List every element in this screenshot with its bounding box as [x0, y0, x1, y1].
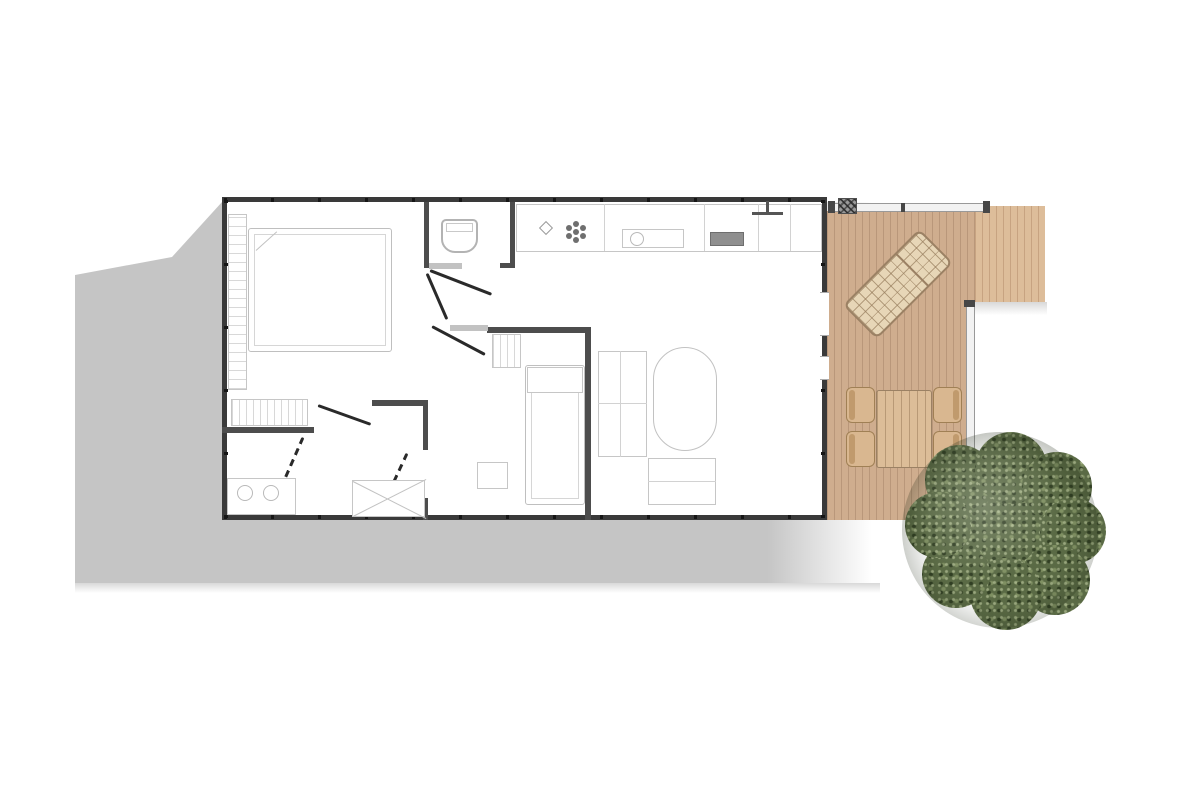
counter-divider	[704, 204, 705, 251]
bench-divider	[620, 351, 621, 457]
wall-bedroom-south-left	[222, 427, 314, 433]
outdoor-chair	[933, 387, 962, 423]
wall-bathroom-east-upper	[423, 400, 428, 450]
shelf-unit	[492, 334, 521, 368]
wardrobe-shelves	[228, 214, 247, 390]
railing-post	[828, 201, 835, 213]
entry-marker-bar	[752, 212, 783, 215]
toilet	[441, 219, 478, 253]
wall-joint-ticks-top	[224, 198, 825, 202]
railing-post	[901, 203, 905, 212]
wall-joint-ticks-bottom	[224, 515, 825, 519]
wall-bedroom2-north	[487, 327, 591, 333]
bench-divider	[598, 403, 647, 404]
deck-corner-grill	[838, 198, 857, 214]
desk	[477, 462, 508, 489]
wall-wc-east	[510, 202, 515, 268]
wall-wc-east-foot	[500, 263, 512, 268]
sliding-wardrobe	[231, 399, 308, 426]
railing-post	[983, 201, 990, 213]
railing-post	[964, 300, 975, 307]
dinette-bench-left	[598, 351, 647, 457]
patio-window-opening	[820, 356, 829, 380]
deck-extension	[975, 206, 1045, 302]
outdoor-table	[876, 390, 932, 468]
dinette-table	[653, 347, 717, 451]
patio-door-opening	[820, 292, 829, 336]
vanity-basin	[237, 485, 253, 501]
counter-divider	[790, 204, 791, 251]
wall-bedroom-south-right	[372, 400, 426, 406]
cooktop	[710, 232, 744, 246]
floor-plan-scene	[0, 0, 1200, 800]
bench-divider	[648, 481, 716, 482]
outdoor-chair	[846, 431, 875, 467]
wall-bedroom2-east	[585, 327, 591, 520]
wall-wc-west	[424, 202, 429, 268]
counter-divider	[604, 204, 605, 251]
deck-extension-shadow	[975, 302, 1047, 315]
sink-basin	[630, 232, 644, 246]
tree-foliage-lobe	[905, 492, 971, 558]
bed-pillow	[527, 367, 583, 393]
vanity-basin	[263, 485, 279, 501]
ground-shadow-fade	[75, 583, 880, 593]
door-sill	[450, 325, 488, 331]
door-sill	[429, 263, 462, 269]
floor-plan-canvas	[0, 0, 1200, 800]
double-bed	[248, 228, 392, 352]
vent-fan-icon	[564, 220, 588, 244]
outdoor-chair	[846, 387, 875, 423]
